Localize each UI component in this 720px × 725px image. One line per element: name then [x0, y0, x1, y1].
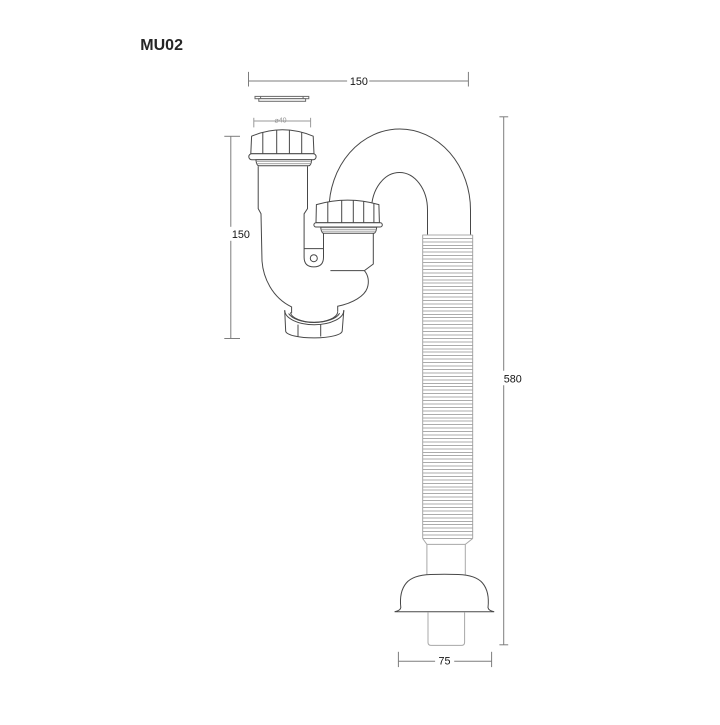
svg-text:150: 150	[232, 229, 250, 241]
svg-text:150: 150	[350, 76, 368, 88]
svg-text:75: 75	[438, 655, 450, 667]
svg-text:MU02: MU02	[140, 37, 183, 54]
svg-text:⌀40: ⌀40	[274, 117, 286, 124]
svg-text:580: 580	[504, 373, 522, 385]
